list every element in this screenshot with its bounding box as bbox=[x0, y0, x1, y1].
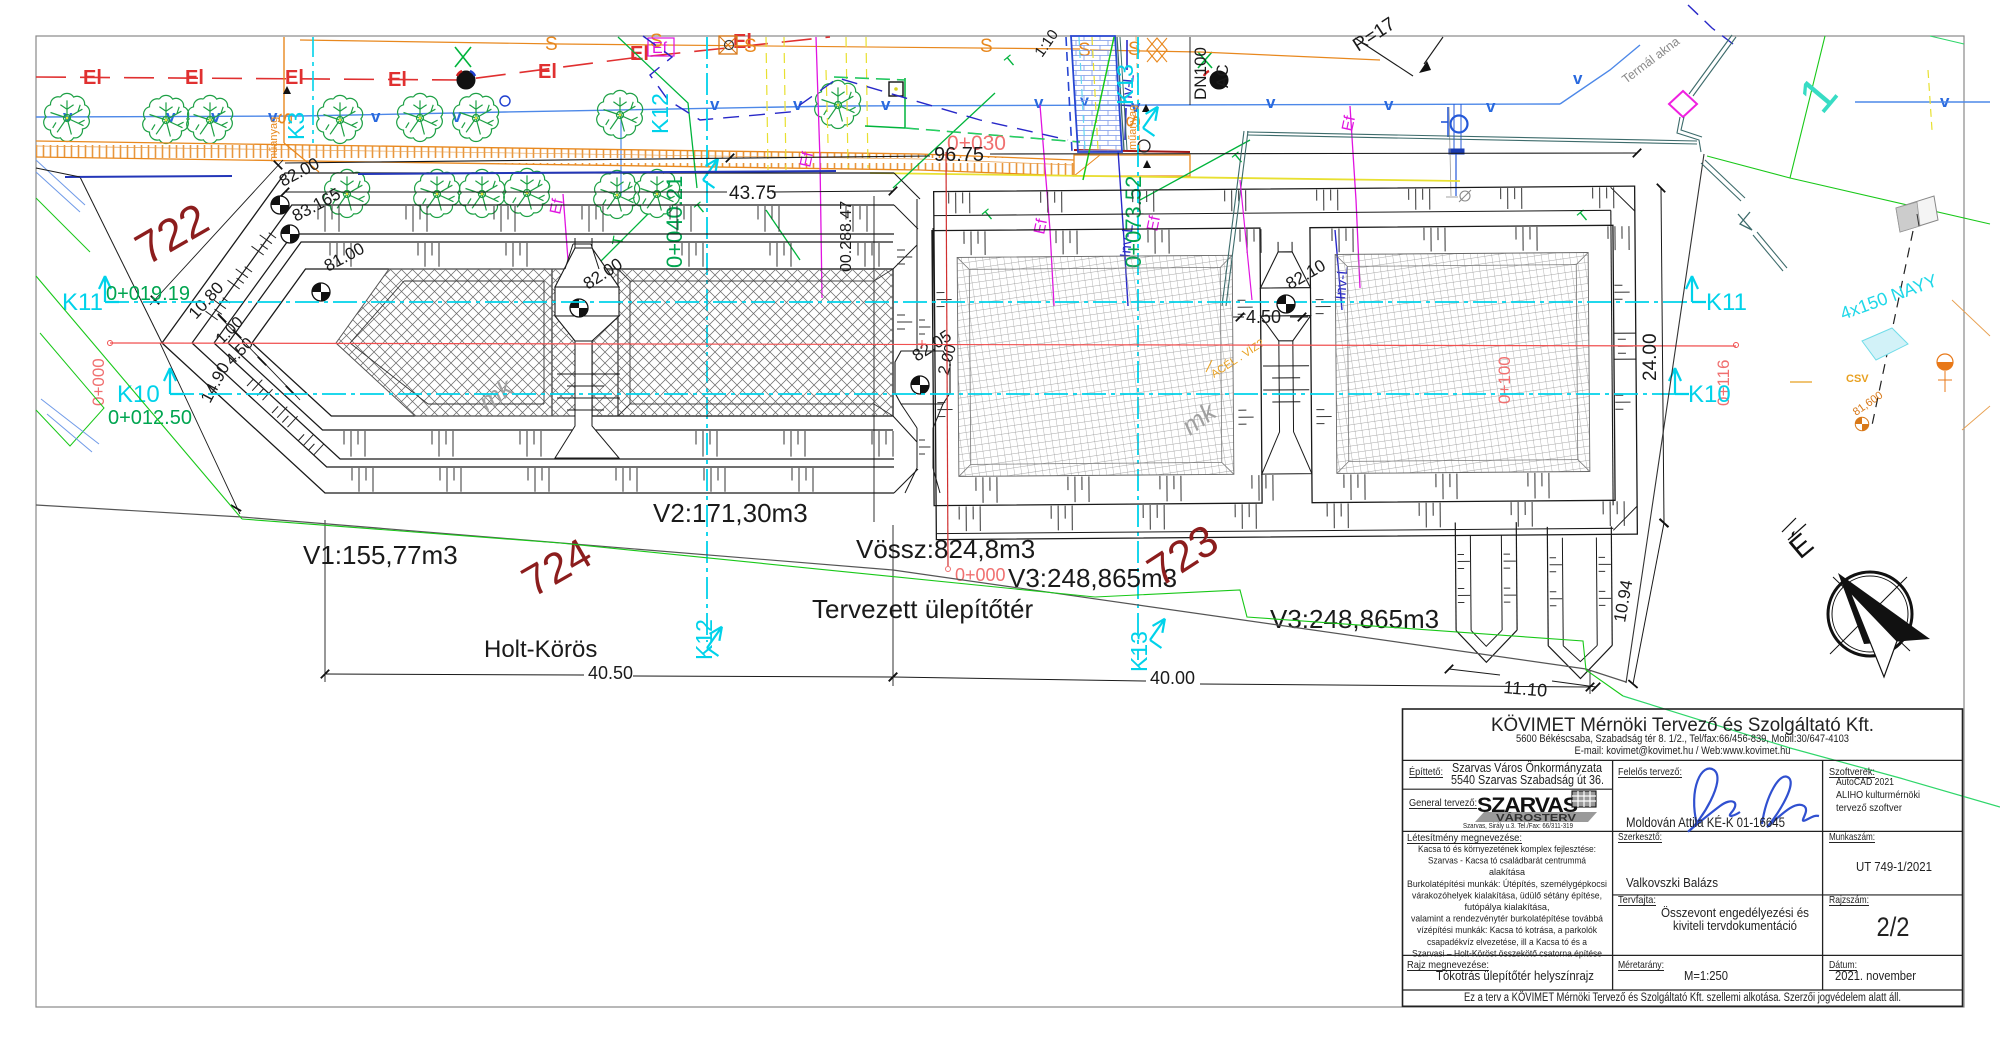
svg-text:El: El bbox=[83, 67, 102, 89]
svg-text:40.50: 40.50 bbox=[588, 663, 633, 683]
svg-text:Felelős tervező:: Felelős tervező: bbox=[1618, 766, 1682, 778]
svg-text:El: El bbox=[388, 69, 407, 91]
svg-text:2021. november: 2021. november bbox=[1835, 969, 1916, 983]
svg-text:CSV: CSV bbox=[1846, 373, 1869, 385]
svg-text:valamint a rendezvénytér burko: valamint a rendezvénytér burkolatépítése… bbox=[1411, 914, 1604, 925]
svg-text:96.75: 96.75 bbox=[934, 144, 984, 166]
svg-text:K12: K12 bbox=[647, 93, 673, 134]
svg-text:várakozóhelyek kialakítása, üd: várakozóhelyek kialakítása, üdülő sétány… bbox=[1412, 890, 1602, 901]
svg-text:v: v bbox=[881, 95, 891, 114]
svg-text:Tervezett ülepítőtér: Tervezett ülepítőtér bbox=[812, 594, 1033, 624]
svg-text:Munkaszám:: Munkaszám: bbox=[1829, 831, 1875, 843]
svg-text:43.75: 43.75 bbox=[729, 183, 777, 204]
svg-text:E-mail: kovimet@kovimet.hu / W: E-mail: kovimet@kovimet.hu / Web:www.kov… bbox=[1575, 745, 1791, 757]
svg-text:AutoCAD 2021: AutoCAD 2021 bbox=[1836, 776, 1894, 788]
svg-text:v: v bbox=[371, 107, 381, 126]
svg-text:V2:171,30m3: V2:171,30m3 bbox=[653, 498, 808, 528]
svg-text:General tervező:: General tervező: bbox=[1409, 797, 1477, 809]
svg-text:DN100: DN100 bbox=[1191, 47, 1210, 100]
svg-text:S: S bbox=[980, 36, 993, 57]
svg-text:K10: K10 bbox=[117, 381, 160, 408]
svg-text:AC: AC bbox=[1213, 64, 1232, 88]
svg-text:ALIHO kulturmérnöki: ALIHO kulturmérnöki bbox=[1836, 789, 1920, 801]
svg-text:Holt-Körös: Holt-Körös bbox=[484, 636, 597, 663]
svg-text:v: v bbox=[1573, 69, 1583, 88]
svg-text:K10: K10 bbox=[1688, 381, 1731, 408]
svg-text:v: v bbox=[1384, 95, 1394, 114]
svg-text:Kacsa tó és környezetének komp: Kacsa tó és környezetének komplex fejles… bbox=[1418, 844, 1596, 855]
svg-text:tervező szoftver: tervező szoftver bbox=[1836, 802, 1902, 814]
svg-text:Szarvasi – Holt-Köröst összekö: Szarvasi – Holt-Köröst összekötő csatorn… bbox=[1412, 948, 1602, 959]
svg-text:v: v bbox=[1486, 97, 1496, 116]
svg-text:El: El bbox=[185, 67, 204, 89]
svg-text:Szarvas, Sirály u.3. Tel./Fax:: Szarvas, Sirály u.3. Tel./Fax: 66/311-31… bbox=[1463, 821, 1573, 830]
svg-text:S: S bbox=[545, 34, 558, 55]
svg-text:V1:155,77m3: V1:155,77m3 bbox=[303, 540, 458, 570]
svg-text:K3: K3 bbox=[283, 112, 309, 140]
svg-text:S: S bbox=[744, 36, 757, 57]
svg-text:vízépítési munkák: Kacsa tó ko: vízépítési munkák: Kacsa tó kotrása, a p… bbox=[1417, 925, 1597, 936]
svg-text:El: El bbox=[630, 43, 649, 65]
svg-text:Rajzszám:: Rajzszám: bbox=[1829, 894, 1869, 906]
svg-text:0+019.19: 0+019.19 bbox=[106, 283, 190, 305]
svg-text:csapadékvíz elvezetése, ill a: csapadékvíz elvezetése, ill a Kacsa tó é… bbox=[1427, 937, 1588, 948]
svg-text:K11: K11 bbox=[62, 289, 103, 316]
svg-text:El: El bbox=[538, 61, 557, 83]
svg-text:K13: K13 bbox=[1126, 631, 1152, 672]
svg-text:4.50: 4.50 bbox=[1246, 307, 1281, 327]
svg-text:0+100: 0+100 bbox=[1495, 356, 1514, 404]
svg-text:40.00: 40.00 bbox=[1150, 668, 1195, 688]
svg-text:Valkovszki Balázs: Valkovszki Balázs bbox=[1626, 876, 1718, 890]
svg-text:24.00: 24.00 bbox=[1640, 333, 1661, 381]
svg-text:0+040.21: 0+040.21 bbox=[662, 176, 687, 268]
svg-text:El: El bbox=[285, 67, 304, 89]
svg-text:K13: K13 bbox=[1112, 64, 1138, 105]
svg-text:Ef: Ef bbox=[652, 40, 668, 57]
svg-text:M=1:250: M=1:250 bbox=[1684, 969, 1728, 983]
svg-text:Összevont engedélyezési és: Összevont engedélyezési és bbox=[1661, 906, 1809, 920]
svg-text:V3:248,865m3: V3:248,865m3 bbox=[1270, 604, 1439, 634]
svg-text:2/2: 2/2 bbox=[1877, 912, 1910, 942]
svg-text:Burkolatépítési munkák: Útépít: Burkolatépítési munkák: Útépítés, személ… bbox=[1407, 879, 1607, 890]
svg-text:5540 Szarvas Szabadság út 36.: 5540 Szarvas Szabadság út 36. bbox=[1451, 773, 1604, 787]
svg-text:5600 Békéscsaba, Szabadság tér: 5600 Békéscsaba, Szabadság tér 8. 1/2., … bbox=[1516, 733, 1849, 745]
svg-text:alakítása: alakítása bbox=[1489, 867, 1526, 878]
svg-text:Vössz:824,8m3: Vössz:824,8m3 bbox=[856, 534, 1035, 564]
svg-text:Ez a terv a KÖVIMET Mérnöki Te: Ez a terv a KÖVIMET Mérnöki Tervező és S… bbox=[1464, 992, 1901, 1004]
svg-text:UT 749-1/2021: UT 749-1/2021 bbox=[1856, 860, 1932, 874]
svg-text:Méretarány:: Méretarány: bbox=[1618, 959, 1664, 971]
svg-text:Tervfajta:: Tervfajta: bbox=[1618, 894, 1656, 906]
svg-text:futópálya kialakítása,: futópálya kialakítása, bbox=[1465, 902, 1550, 913]
svg-text:0+000: 0+000 bbox=[89, 358, 108, 406]
svg-text:Tókotrás ülepítőtér helyszínra: Tókotrás ülepítőtér helyszínrajz bbox=[1436, 969, 1594, 983]
svg-text:Építtető:: Építtető: bbox=[1409, 765, 1443, 778]
svg-text:v: v bbox=[710, 95, 720, 114]
svg-text:Szarvas - Kacsa tó családbarát: Szarvas - Kacsa tó családbarát centrummá bbox=[1428, 856, 1587, 867]
svg-text:K11: K11 bbox=[1706, 289, 1747, 316]
svg-text:Moldován Attila KÉ-K 01-16645: Moldován Attila KÉ-K 01-16645 bbox=[1626, 815, 1785, 830]
svg-text:műanyag: műanyag bbox=[268, 117, 280, 162]
svg-text:11.10: 11.10 bbox=[1503, 677, 1548, 701]
svg-text:Létesítmény megnevezése:: Létesítmény megnevezése: bbox=[1407, 832, 1522, 844]
svg-text:v: v bbox=[1266, 93, 1276, 112]
svg-text:Szerkesztő:: Szerkesztő: bbox=[1618, 831, 1662, 843]
svg-text:kiviteli tervdokumentáció: kiviteli tervdokumentáció bbox=[1673, 919, 1797, 933]
svg-text:v: v bbox=[1034, 93, 1044, 112]
